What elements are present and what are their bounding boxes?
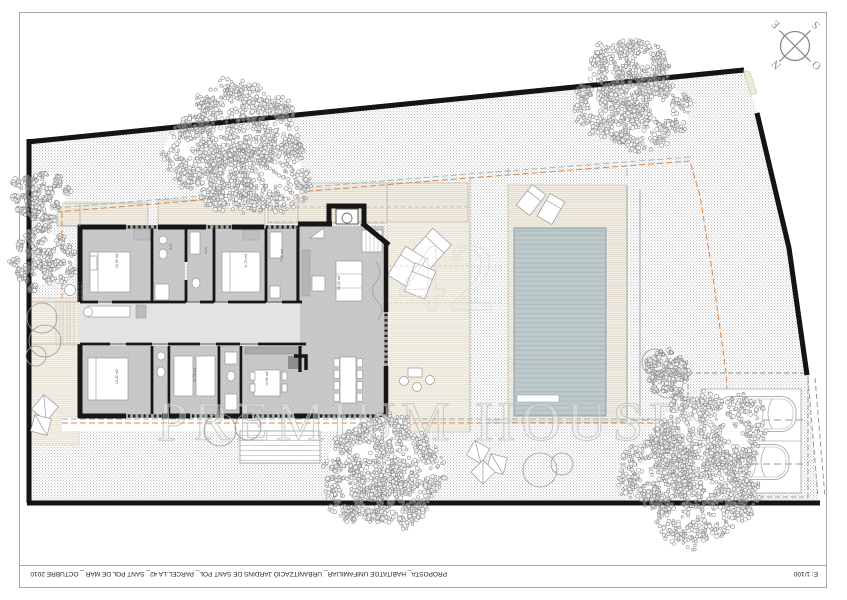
- svg-text:12,50 m2: 12,50 m2: [115, 253, 119, 268]
- svg-text:13,40 m2: 13,40 m2: [115, 369, 119, 384]
- svg-text:7,45 m2: 7,45 m2: [280, 249, 284, 262]
- svg-text:42: 42: [398, 224, 498, 331]
- svg-text:3,07: 3,07: [169, 243, 173, 250]
- svg-text:4,10: 4,10: [204, 247, 208, 254]
- svg-text:11,70 m2: 11,70 m2: [244, 254, 248, 268]
- svg-text:11,75 m2: 11,75 m2: [193, 368, 197, 382]
- svg-text:PREMIUM HOUSES: PREMIUM HOUSES: [157, 391, 725, 452]
- svg-text:14,90 m2: 14,90 m2: [265, 371, 269, 386]
- svg-text:55,20 m2: 55,20 m2: [337, 275, 341, 290]
